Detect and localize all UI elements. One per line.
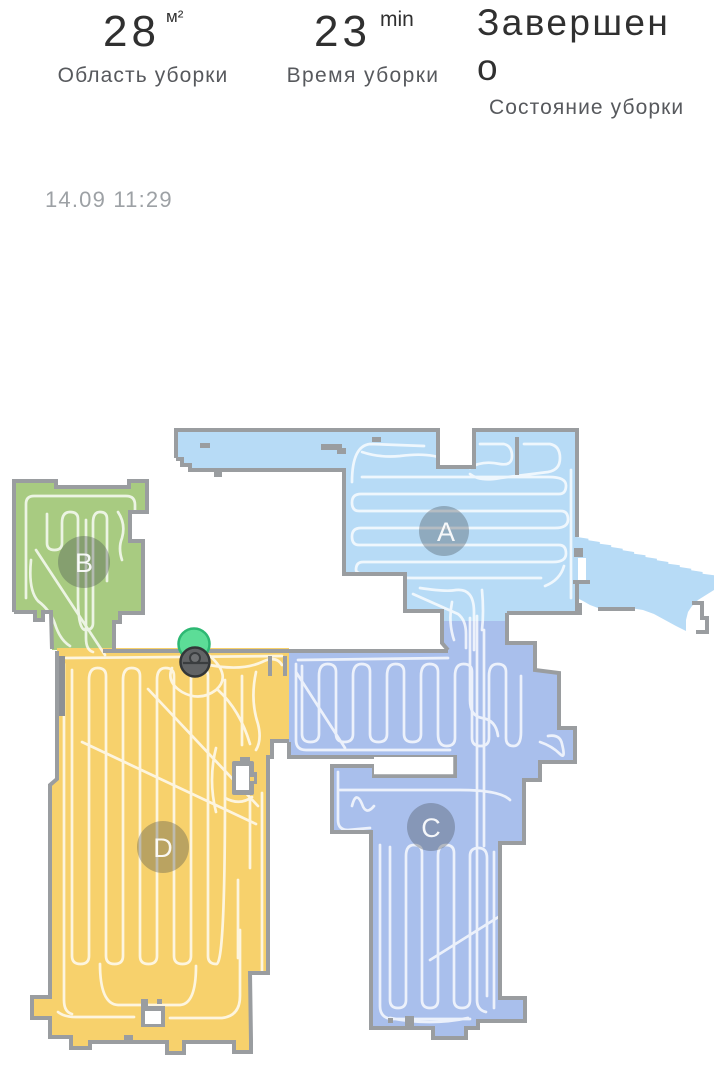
svg-text:о: о (477, 47, 498, 88)
svg-text:14.09 11:29: 14.09 11:29 (45, 187, 173, 212)
svg-text:Область уборки: Область уборки (58, 64, 229, 87)
svg-text:B: B (75, 548, 93, 578)
svg-text:A: A (437, 517, 455, 547)
svg-text:Завершен: Завершен (477, 2, 670, 43)
svg-text:Время уборки: Время уборки (287, 64, 440, 87)
svg-text:23: 23 (314, 7, 371, 56)
svg-text:C: C (421, 813, 441, 843)
svg-text:м²: м² (166, 7, 184, 26)
svg-text:Состояние уборки: Состояние уборки (489, 96, 684, 119)
svg-text:28: 28 (103, 7, 160, 56)
svg-text:min: min (380, 8, 414, 31)
svg-text:D: D (153, 833, 173, 863)
